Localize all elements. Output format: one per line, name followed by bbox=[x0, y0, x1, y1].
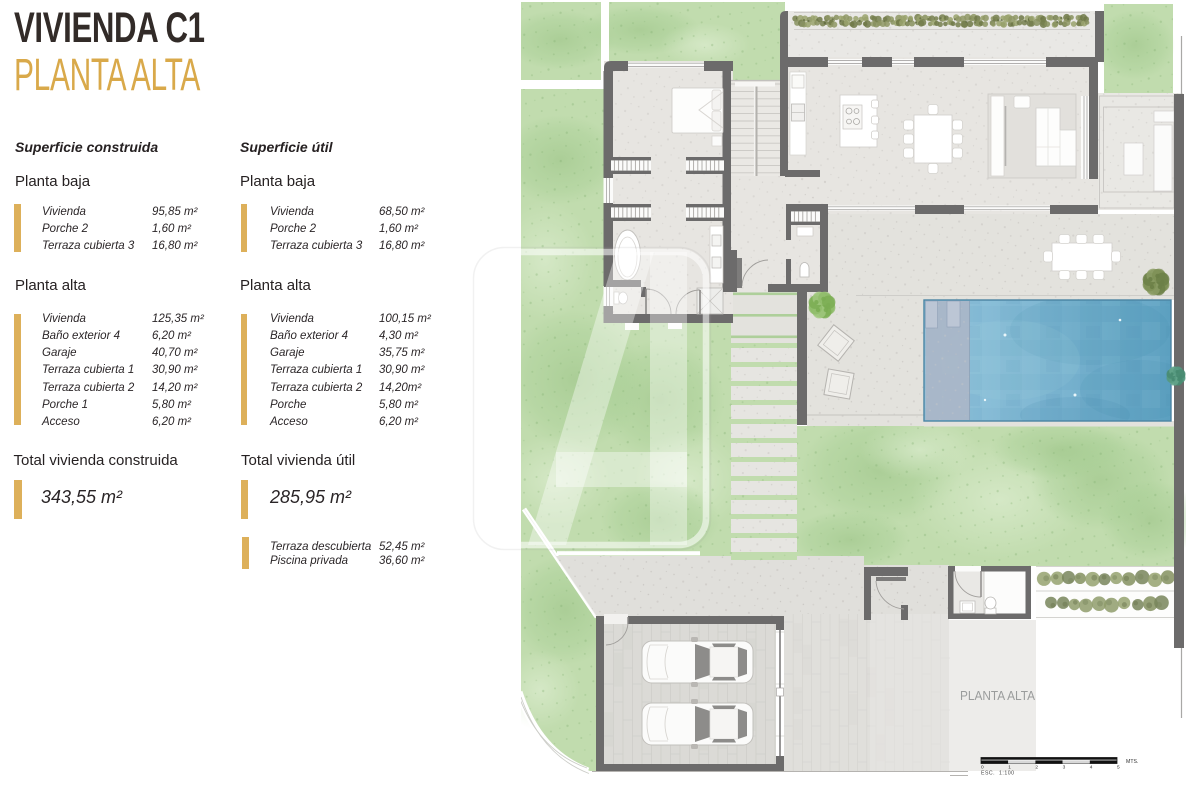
svg-text:2: 2 bbox=[1035, 764, 1038, 770]
svg-text:4: 4 bbox=[1090, 764, 1093, 770]
svg-text:ESC. 1:100: ESC. 1:100 bbox=[981, 771, 1014, 777]
svg-text:3: 3 bbox=[1063, 764, 1066, 770]
svg-text:MTS.: MTS. bbox=[1126, 759, 1138, 765]
svg-text:5: 5 bbox=[1117, 764, 1120, 770]
svg-text:0: 0 bbox=[981, 764, 984, 770]
svg-text:PLANTA ALTA: PLANTA ALTA bbox=[960, 688, 1035, 703]
svg-text:1: 1 bbox=[1008, 764, 1011, 770]
